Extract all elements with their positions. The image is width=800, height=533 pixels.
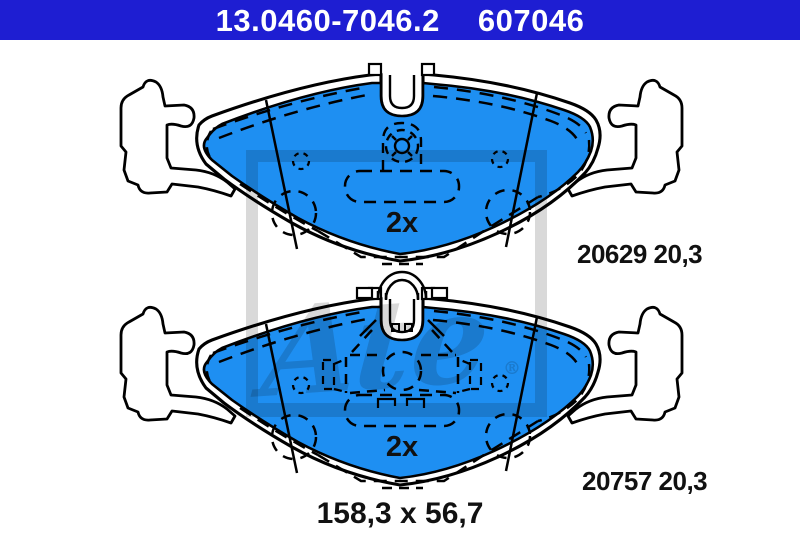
- product-image: 13.0460-7046.2 607046: [0, 0, 800, 533]
- quantity-label-bottom-pad: 2x: [367, 433, 437, 462]
- backing-plate-ref-top-pad: 20629 20,3: [577, 241, 702, 267]
- pad-dimensions-label: 158,3 x 56,7: [0, 499, 800, 529]
- backing-plate-ref-bottom-pad: 20757 20,3: [582, 468, 707, 494]
- quantity-label-top-pad: 2x: [367, 209, 437, 238]
